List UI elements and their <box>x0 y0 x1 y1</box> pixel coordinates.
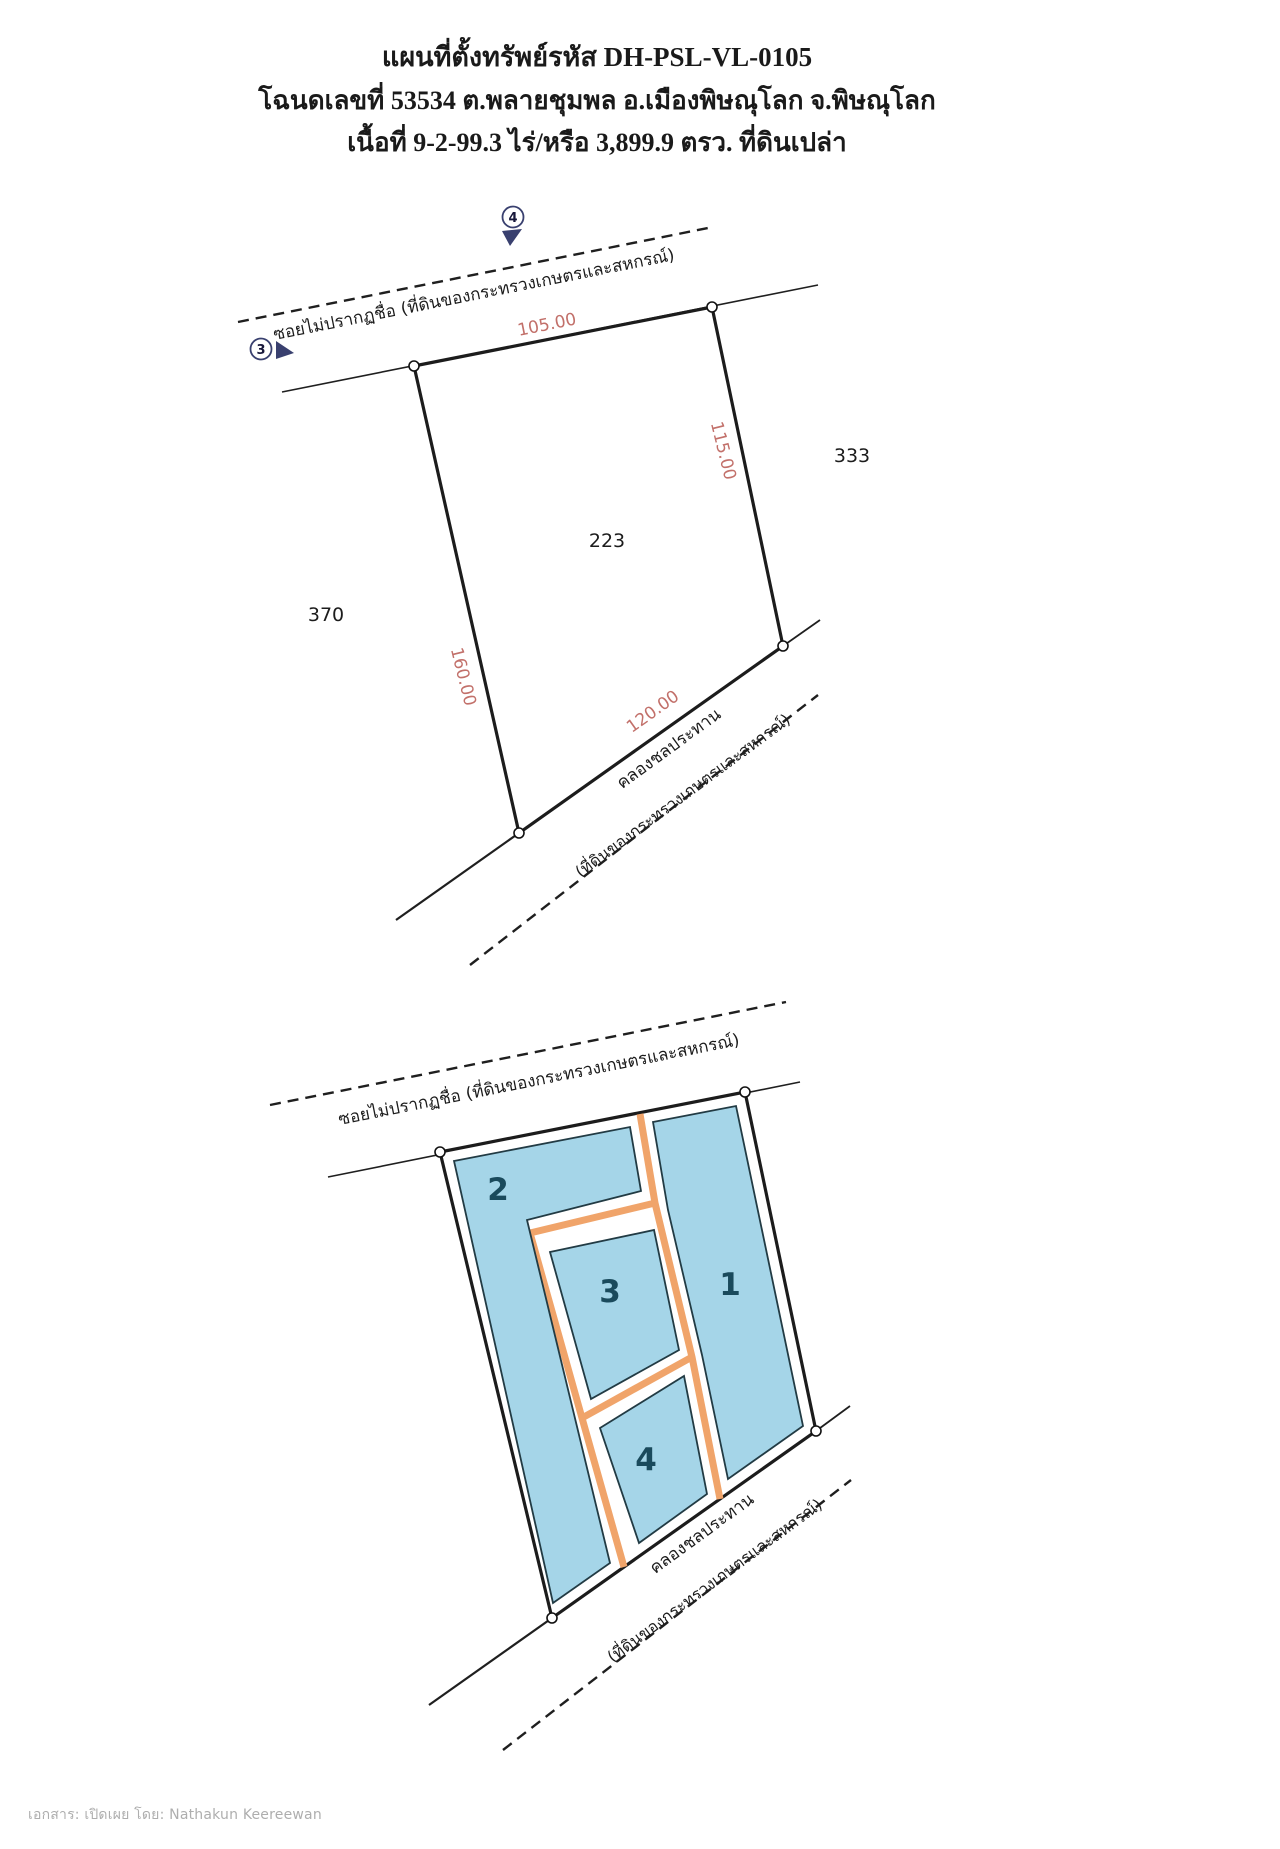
soi-dashed-line-top <box>238 228 708 322</box>
corner-marker <box>778 641 788 651</box>
canal-boundary-extension-right <box>783 620 820 646</box>
canal-boundary-extension-left-bottom <box>429 1618 552 1705</box>
document-footer: เอกสาร: เปิดเผย โดย: Nathakun Keereewan <box>28 1804 322 1826</box>
corner-marker <box>514 828 524 838</box>
corner-marker <box>811 1426 821 1436</box>
boundary-marker-4: 4 <box>502 207 524 247</box>
canal-boundary-extension-left <box>396 833 519 920</box>
parcel-number: 223 <box>589 530 625 552</box>
marker-4-number: 4 <box>508 211 517 226</box>
corner-marker <box>707 302 717 312</box>
sub-plot-1-number: 1 <box>719 1267 741 1303</box>
diagram-bottom-subdivision: ซอยไม่ปรากฏชื่อ (ที่ดินของกระทรวงเกษตรแล… <box>270 1002 851 1750</box>
corner-marker <box>740 1087 750 1097</box>
scanned-property-map-page: แผนที่ตั้งทรัพย์รหัส DH-PSL-VL-0105 โฉนด… <box>0 0 1280 1849</box>
corner-marker <box>435 1147 445 1157</box>
corner-marker <box>409 361 419 371</box>
canal-boundary-extension-right-bottom <box>816 1406 850 1431</box>
marker-3-number: 3 <box>256 343 265 358</box>
marker-4-arrow-icon <box>502 229 522 246</box>
cadastral-map-canvas: ซอยไม่ปรากฏชื่อ (ที่ดินของกระทรวงเกษตรแล… <box>0 0 1280 1849</box>
marker-3-arrow-icon <box>276 341 294 359</box>
dimension-left-side: 160.00 <box>446 646 480 709</box>
neighbor-parcel-left: 370 <box>308 604 344 626</box>
sub-plot-4-number: 4 <box>635 1442 657 1478</box>
corner-marker <box>547 1613 557 1623</box>
diagram-top-parcel: ซอยไม่ปรากฏชื่อ (ที่ดินของกระทรวงเกษตรแล… <box>238 207 870 966</box>
neighbor-parcel-right: 333 <box>834 445 870 467</box>
sub-plot-3-number: 3 <box>599 1274 621 1310</box>
sub-plot-2-number: 2 <box>487 1172 509 1208</box>
